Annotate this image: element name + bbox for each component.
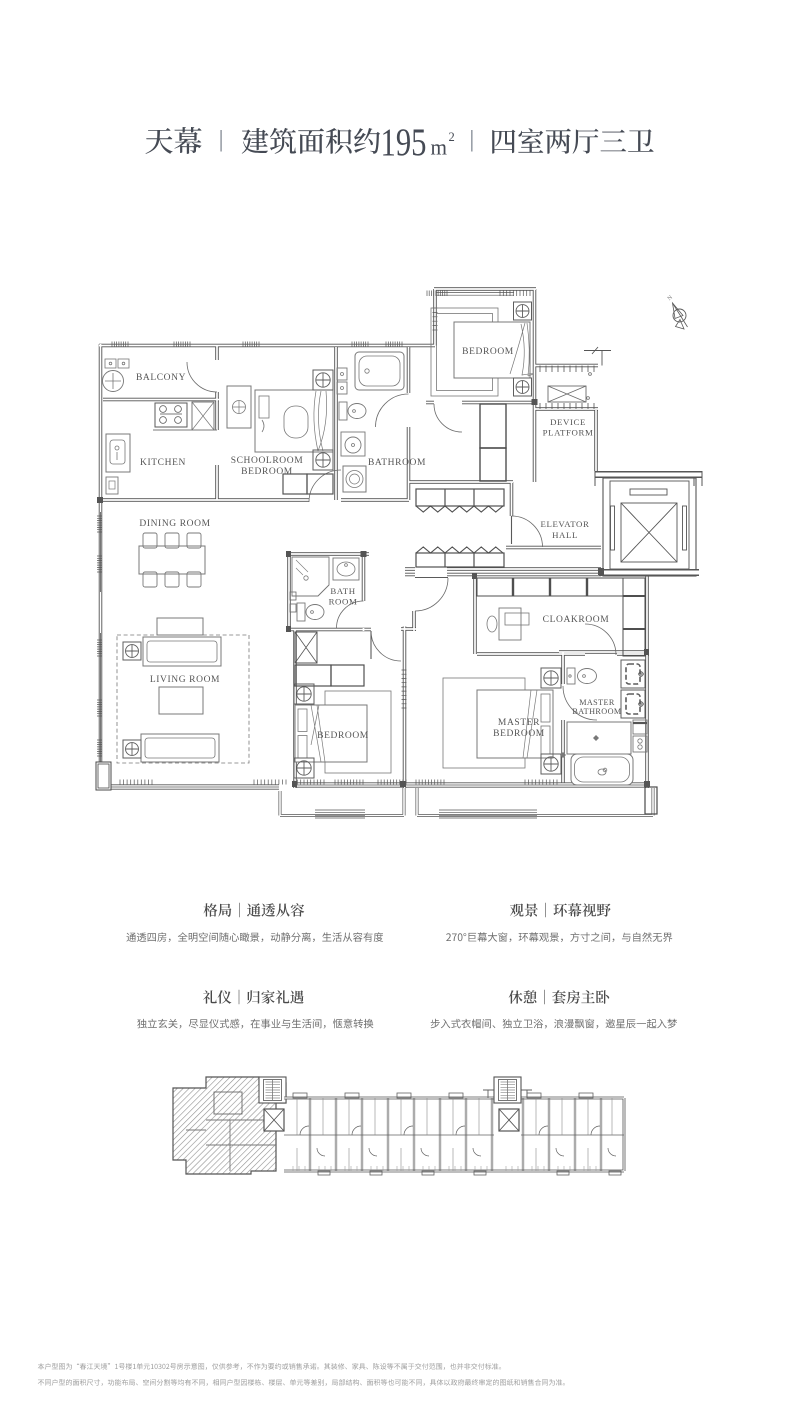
svg-text:DEVICE: DEVICE bbox=[550, 417, 586, 427]
svg-text:BATHROOM: BATHROOM bbox=[368, 458, 426, 468]
svg-text:ELEVATOR: ELEVATOR bbox=[541, 519, 590, 529]
svg-text:CLOAKROOM: CLOAKROOM bbox=[543, 615, 610, 625]
svg-text:ROOM: ROOM bbox=[329, 597, 358, 607]
svg-text:MASTER: MASTER bbox=[579, 698, 615, 707]
svg-text:BEDROOM: BEDROOM bbox=[317, 731, 369, 741]
svg-text:DINING ROOM: DINING ROOM bbox=[139, 519, 210, 529]
svg-text:PLATFORM: PLATFORM bbox=[543, 428, 594, 438]
svg-text:195: 195 bbox=[381, 121, 427, 164]
svg-text:BATH: BATH bbox=[330, 586, 355, 596]
svg-text:KITCHEN: KITCHEN bbox=[140, 458, 186, 468]
svg-text:BEDROOM: BEDROOM bbox=[241, 467, 293, 477]
svg-text:BEDROOM: BEDROOM bbox=[462, 347, 514, 357]
svg-text:SCHOOLROOM: SCHOOLROOM bbox=[231, 456, 304, 466]
svg-text:2: 2 bbox=[449, 130, 455, 144]
svg-text:BATHROOM: BATHROOM bbox=[572, 707, 621, 716]
svg-text:m: m bbox=[431, 135, 448, 160]
svg-text:MASTER: MASTER bbox=[498, 718, 540, 728]
svg-text:BALCONY: BALCONY bbox=[136, 373, 186, 383]
svg-text:LIVING ROOM: LIVING ROOM bbox=[150, 675, 220, 685]
svg-text:BEDROOM: BEDROOM bbox=[493, 729, 545, 739]
svg-text:HALL: HALL bbox=[552, 530, 578, 540]
